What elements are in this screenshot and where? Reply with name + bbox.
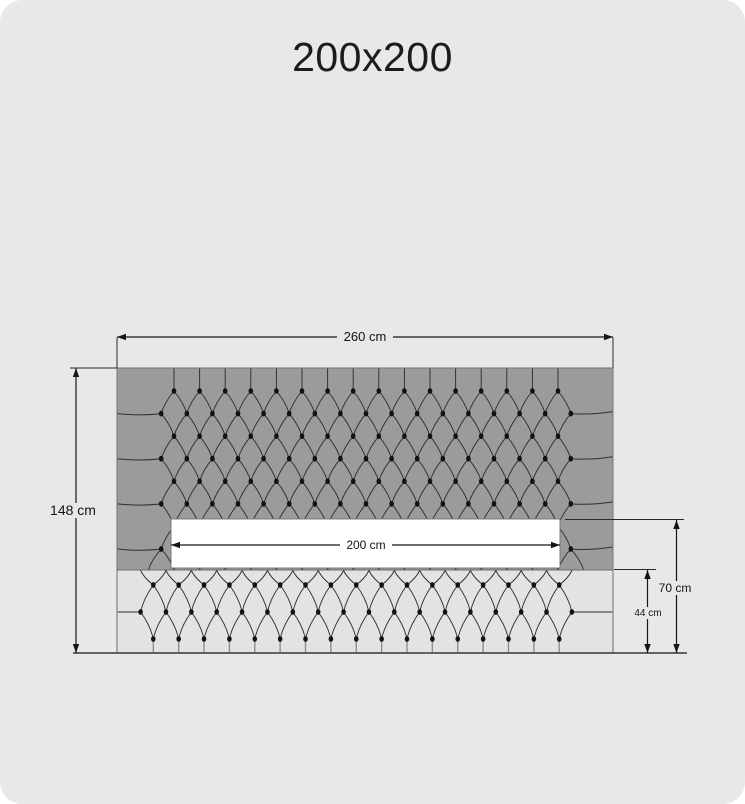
page-background: 200x200 260 cm 148 cm 200 cm 70 cm 44 cm — [0, 0, 745, 804]
bed-diagram: 260 cm 148 cm 200 cm 70 cm 44 cm — [0, 0, 745, 804]
total-width-label: 260 cm — [344, 329, 387, 344]
total-height-label: 148 cm — [50, 502, 96, 518]
foot-end-height-label: 70 cm — [659, 581, 692, 595]
mattress-width-label: 200 cm — [346, 538, 385, 552]
base-height-label: 44 cm — [634, 608, 661, 619]
bed-drawing — [70, 334, 687, 653]
